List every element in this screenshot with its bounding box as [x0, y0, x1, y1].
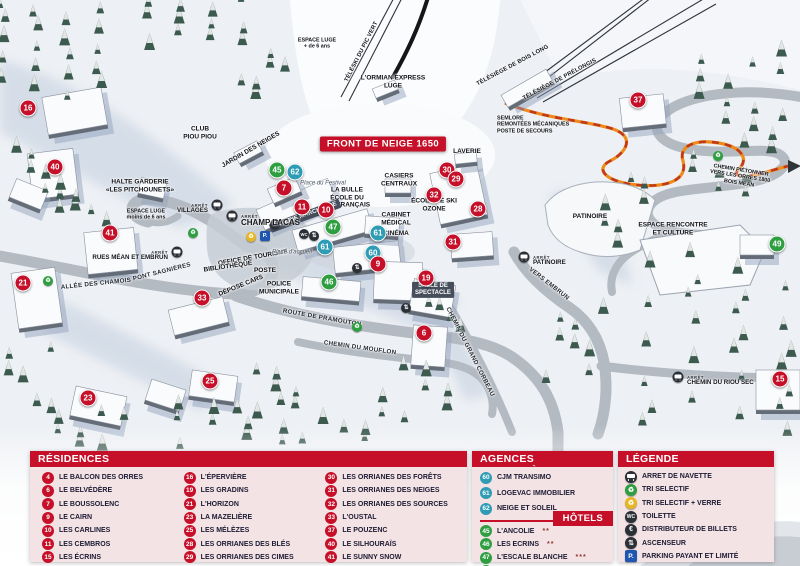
map-label-line: POLICE	[259, 280, 299, 288]
legend-item-label: L'OUSTAL	[342, 514, 376, 521]
parking-icon: P.	[625, 550, 637, 562]
bus-stop-label: ARRÊTRUES MÉAN ET EMBRUN	[92, 251, 168, 262]
legend-item-label: LA MAZELIÈRE	[201, 514, 252, 521]
marker-16-residence: 16	[20, 100, 37, 117]
map-number-badge: 25	[184, 525, 196, 537]
legend-item-agency: 60CJM TRANSIMO	[480, 470, 613, 486]
map-label-line: CENTRAUX	[381, 180, 417, 188]
map-label-line: MUNICIPALE	[259, 288, 299, 296]
marker-46-hotel: 46	[321, 274, 338, 291]
bus-glyph	[172, 247, 183, 258]
map-label-line: + de 6 ans	[298, 44, 336, 50]
tree	[238, 0, 245, 2]
marker-37-residence: 37	[630, 92, 647, 109]
arret-caption: ARRÊT	[92, 251, 168, 255]
marker-25-residence: 25	[202, 373, 219, 390]
map-label-line: LA BULLE	[324, 187, 370, 195]
legend-item-label: LES ÉCRINS	[59, 554, 101, 561]
marker-6-residence: 6	[416, 325, 433, 342]
legend-item-label: LE BELVÉDÈRE	[59, 487, 112, 494]
legend-item-residence: 11LES CEMBROS	[42, 537, 184, 550]
legend-item-label: DISTRIBUTEUR DE BILLETS	[642, 526, 737, 533]
arret-caption: ARRÊT	[687, 376, 754, 380]
marker-45-hotel: 45	[269, 162, 286, 179]
marker-21-residence: 21	[15, 275, 32, 292]
marker-9-residence: 9	[370, 256, 387, 273]
tree-snow-cap	[146, 0, 150, 2]
legend-item-residence: 21L'HORIZON	[184, 498, 326, 511]
legend-item-residence: 33L'OUSTAL	[325, 511, 467, 524]
map-label-cinema: CINÉMA	[383, 230, 409, 238]
legend-item-label: LE BOUSSOLENC	[59, 501, 119, 508]
map-label-espace-luge-plus: ESPACE LUGE+ de 6 ans	[298, 38, 336, 51]
recycle-green-icon: ♻	[713, 151, 723, 161]
marker-28-residence: 28	[470, 201, 487, 218]
legend-item-symbol: ⇅ASCENSEUR	[625, 536, 774, 549]
legend-item-label: L'ESCALE BLANCHE	[497, 554, 568, 561]
map-label-line: MÉDICAL	[381, 219, 411, 227]
toilet-icon: WC	[625, 511, 637, 523]
map-label-line: moins de 6 ans	[127, 215, 166, 221]
legende-panel: LÉGENDE ARRET DE NAVETTE♻TRI SELECTIF♻TR…	[618, 451, 774, 562]
legend-item-label: ASCENSEUR	[642, 540, 686, 547]
map-number-badge: 9	[42, 512, 54, 524]
map-number-badge: 4	[42, 472, 54, 484]
map-label-laverie: LAVERIE	[453, 148, 481, 156]
front-de-neige-banner: FRONT DE NEIGE 1650	[320, 137, 446, 152]
legend-item-label: LE BALCON DES ORRES	[59, 474, 143, 481]
agences-hotels-panel: AGENCES IMMOBILIÈRES HÔTELS 60CJM TRANSI…	[472, 451, 613, 562]
map-label-cabinet-medical: CABINETMÉDICAL	[381, 211, 411, 226]
map-number-badge: 62	[480, 503, 492, 515]
residences-header: RÉSIDENCES	[30, 451, 467, 467]
marker-15-residence: 15	[772, 371, 789, 388]
map-number-badge: 31	[325, 485, 337, 497]
legend-item-residence: 19LES GRADINS	[184, 484, 326, 497]
legend-item-label: L'HORIZON	[201, 501, 239, 508]
map-label-line: PATINOIRE	[573, 213, 607, 221]
legend-item-residence: 31LES ORRIANES DES NEIGES	[325, 484, 467, 497]
map-number-badge: 37	[325, 525, 337, 537]
legend-item-residence: 41LE SUNNY SNOW	[325, 551, 467, 564]
legend-item-hotel: 46LES ECRINS**	[480, 538, 613, 551]
legende-list: ARRET DE NAVETTE♻TRI SELECTIF♻TRI SELECT…	[618, 467, 774, 562]
map-number-badge: 23	[184, 512, 196, 524]
legend-item-label: PARKING PAYANT ET LIMITÉ	[642, 553, 738, 560]
legend-item-label: LES CEMBROS	[59, 541, 110, 548]
legend-item-label: LE SUNNY SNOW	[342, 554, 401, 561]
residences-column-2: 16L'ÉPERVIÈRE19LES GRADINS21L'HORIZON23L…	[184, 471, 326, 562]
legende-header: LÉGENDE	[618, 451, 774, 467]
map-number-badge: 61	[480, 487, 492, 499]
map-number-badge: 41	[325, 551, 337, 563]
recycle-green-icon: ♻	[352, 322, 362, 332]
marker-61-agency: 61	[370, 225, 387, 242]
map-label-ormian-express-luge: L'ORMIAN EXPRESSLUGE	[361, 74, 425, 89]
hotels-header: HÔTELS	[553, 511, 613, 526]
legend-item-symbol: ♻TRI SELECTIF + VERRE	[625, 497, 774, 510]
bus-stop-label: ARRÊTCHAMP LACAS	[241, 215, 300, 228]
residences-column-3: 30LES ORRIANES DES FORÊTS31LES ORRIANES …	[325, 471, 467, 562]
map-label-patinoire: PATINOIRE	[573, 213, 607, 221]
map-label-casiers-centraux: CASIERSCENTRAUX	[381, 172, 417, 187]
map-number-badge: 19	[184, 485, 196, 497]
map-number-badge: 32	[325, 498, 337, 510]
legend-item-symbol: €DISTRIBUTEUR DE BILLETS	[625, 523, 774, 536]
map-label-line: «LES PITCHOUNETS»	[106, 186, 174, 194]
map-label-semlore: SEMLOREREMONTÉES MÉCANIQUESPOSTE DE SECO…	[497, 115, 569, 134]
bus-icon	[212, 200, 223, 211]
legend-item-label: NEIGE ET SOLEIL	[497, 505, 557, 512]
map-label-line: POSTE DE SECOURS	[497, 128, 569, 134]
legend-item-label: TOILETTE	[642, 513, 676, 520]
map-label-espace-luge-moins: ESPACE LUGEmoins de 6 ans	[127, 209, 166, 222]
legend-item-label: LES ORRIANES DES FORÊTS	[342, 474, 441, 481]
legend-item-label: LES CARLINES	[59, 527, 110, 534]
map-number-badge: 47	[480, 552, 492, 564]
map-label-line: Place d'accueil	[272, 249, 312, 256]
map-number-badge: 6	[42, 485, 54, 497]
legend-item-residence: 6LE BELVÉDÈRE	[42, 484, 184, 497]
legend-item-residence: 37LE POUZENC	[325, 524, 467, 537]
map-number-badge: 29	[184, 551, 196, 563]
marker-31-residence: 31	[445, 234, 462, 251]
legend-item-symbol: WCTOILETTE	[625, 510, 774, 523]
bus-glyph	[625, 471, 637, 483]
legend-item-label: L'ÉPERVIÈRE	[201, 474, 247, 481]
map-label-line: CINÉMA	[383, 230, 409, 238]
legend-item-residence: 16L'ÉPERVIÈRE	[184, 471, 326, 484]
map-label-poste: POSTE	[254, 267, 276, 275]
residences-column-1: 4LE BALCON DES ORRES6LE BELVÉDÈRE7LE BOU…	[42, 471, 184, 562]
recycle-green-icon: ♻	[625, 484, 637, 496]
legend-item-residence: 28LES ORRIANES DES BLÉS	[184, 537, 326, 550]
legend-item-label: TRI SELECTIF	[642, 486, 689, 493]
map-label-line: OZONE	[411, 205, 457, 213]
legend-item-residence: 4LE BALCON DES ORRES	[42, 471, 184, 484]
map-number-badge: 60	[480, 472, 492, 484]
map-number-badge: 46	[480, 538, 492, 550]
map-label-line: ESPACE RENCONTRE	[638, 221, 707, 229]
legend-item-symbol: P.PARKING PAYANT ET LIMITÉ	[625, 550, 774, 563]
legend-item-label: LES GRADINS	[201, 487, 249, 494]
map-label-salle-de-spectacle: SALLE DESPECTACLE	[412, 282, 454, 298]
map-number-badge: 15	[42, 551, 54, 563]
marker-47-hotel: 47	[325, 219, 342, 236]
map-label-line: ET CULTURE	[638, 229, 707, 237]
elevator-icon: ⇅	[352, 263, 362, 273]
bus-glyph	[212, 200, 223, 211]
elevator-icon: ⇅	[309, 231, 319, 241]
bus-icon	[673, 372, 684, 383]
map-number-badge: 33	[325, 512, 337, 524]
map-number-badge: 7	[42, 498, 54, 510]
legend-item-label: LES MÉLÈZES	[201, 527, 250, 534]
map-label-line: CLUB	[183, 125, 217, 133]
marker-61-agency: 61	[317, 239, 334, 256]
map-number-badge: 21	[184, 498, 196, 510]
legend-item-residence: 29LES ORRIANES DES CIMES	[184, 551, 326, 564]
map-label-line: SPECTACLE	[415, 290, 451, 297]
map-number-badge: 45	[480, 525, 492, 537]
map-number-badge: 30	[325, 472, 337, 484]
map-label-line: POSTE	[254, 267, 276, 275]
map-number-badge: 11	[42, 538, 54, 550]
map-label-line: Place du Festival	[300, 180, 346, 187]
legend-item-label: CJM TRANSIMO	[497, 474, 551, 481]
marker-49-hotel: 49	[769, 236, 786, 253]
bus-glyph	[227, 211, 238, 222]
residences-list: 4LE BALCON DES ORRES6LE BELVÉDÈRE7LE BOU…	[30, 467, 467, 562]
elevator-icon: ⇅	[401, 303, 411, 313]
legend-item-label: LOGEVAC IMMOBILIER	[497, 490, 575, 497]
recycle-green-icon: ♻	[188, 228, 198, 238]
marker-62-agency: 62	[287, 164, 304, 181]
map-label-place-du-festival: Place du Festival	[300, 180, 346, 187]
euro-icon: €	[625, 524, 637, 536]
map-number-badge: 28	[184, 538, 196, 550]
map-label-place-accueil: Place d'accueil	[272, 249, 312, 256]
bus-glyph	[519, 252, 530, 263]
recycle-green-icon: ♻	[43, 276, 53, 286]
bus-icon	[172, 247, 183, 258]
bus-icon	[227, 211, 238, 222]
recycle-yellow-icon: ♻	[246, 232, 256, 242]
map-label-line: LUGE	[361, 82, 425, 90]
marker-23-residence: 23	[80, 390, 97, 407]
legend-item-label: LES ECRINS	[497, 541, 539, 548]
arret-caption: ARRÊT	[533, 256, 566, 260]
parking-icon: P.	[260, 231, 270, 241]
marker-10-residence: 10	[318, 202, 335, 219]
marker-33-residence: 33	[194, 290, 211, 307]
bus-icon	[519, 252, 530, 263]
bus-stop-label: ARRÊTVILLAGES	[177, 204, 208, 215]
residences-panel: RÉSIDENCES 4LE BALCON DES ORRES6LE BELVÉ…	[30, 451, 467, 562]
legend-item-label: LES ORRIANES DES SOURCES	[342, 501, 447, 508]
legend-item-residence: 30LES ORRIANES DES FORÊTS	[325, 471, 467, 484]
legend-item-residence: 7LE BOUSSOLENC	[42, 498, 184, 511]
marker-41-residence: 41	[102, 225, 119, 242]
legend-item-label: LE POUZENC	[342, 527, 387, 534]
bus-stop-label: ARRÊTCHEMIN DU RIOU SEC	[687, 376, 754, 387]
hotel-stars: ***	[576, 554, 587, 561]
legend-item-agency: 61LOGEVAC IMMOBILIER	[480, 486, 613, 502]
bus-icon	[625, 471, 637, 483]
map-label-line: PIOU PIOU	[183, 133, 217, 141]
legend-item-residence: 40LE SILHOURAÏS	[325, 537, 467, 550]
bus-glyph	[673, 372, 684, 383]
map-label-line: REMONTÉES MÉCANIQUES	[497, 122, 569, 128]
toilet-icon: WC	[299, 229, 309, 239]
marker-29-residence: 29	[448, 171, 465, 188]
map-label-line: CABINET	[381, 211, 411, 219]
hotel-stars: **	[547, 541, 554, 548]
map-number-badge: 16	[184, 472, 196, 484]
arret-caption: ARRÊT	[177, 204, 208, 208]
legend-item-residence: 15LES ÉCRINS	[42, 551, 184, 564]
map-label-club-piou-piou: CLUBPIOU PIOU	[183, 125, 217, 140]
bus-stop-label: ARRÊTPATINOIRE	[533, 256, 566, 267]
map-label-line: L'ORMIAN EXPRESS	[361, 74, 425, 82]
legend-item-label: LE CAIRN	[59, 514, 92, 521]
map-number-badge: 10	[42, 525, 54, 537]
marker-32-residence: 32	[426, 187, 443, 204]
map-label-line: HALTE GARDERIE	[106, 178, 174, 186]
agences-header: AGENCES IMMOBILIÈRES	[472, 451, 613, 467]
legend-item-symbol: ♻TRI SELECTIF	[625, 483, 774, 496]
marker-7-residence: 7	[276, 180, 293, 197]
legend-item-hotel: 45L'ANCOLIE**	[480, 525, 613, 538]
legend-item-label: LES ORRIANES DES CIMES	[201, 554, 294, 561]
agences-list: HÔTELS 60CJM TRANSIMO61LOGEVAC IMMOBILIE…	[472, 467, 613, 562]
legend-item-residence: 10LES CARLINES	[42, 524, 184, 537]
legend-item-label: LES ORRIANES DES BLÉS	[201, 541, 290, 548]
legend-item-residence: 23LA MAZELIÈRE	[184, 511, 326, 524]
legend-item-label: L'ANCOLIE	[497, 528, 534, 535]
marker-40-residence: 40	[47, 159, 64, 176]
map-label-halte-garderie: HALTE GARDERIE«LES PITCHOUNETS»	[106, 178, 174, 193]
legend-item-residence: 9LE CAIRN	[42, 511, 184, 524]
map-number-badge: 40	[325, 538, 337, 550]
recycle-yellow-icon: ♻	[625, 497, 637, 509]
arret-caption: ARRÊT	[241, 215, 300, 219]
ski-resort-map: FRONT DE NEIGE 1650 16404121332325456271…	[0, 0, 800, 566]
legend-item-residence: 25LES MÉLÈZES	[184, 524, 326, 537]
marker-19-residence: 19	[418, 270, 435, 287]
legend-item-label: LES ORRIANES DES NEIGES	[342, 487, 439, 494]
legend-item-label: TRI SELECTIF + VERRE	[642, 500, 721, 507]
legend-item-label: LE SILHOURAÏS	[342, 541, 396, 548]
map-label-police-municipale: POLICEMUNICIPALE	[259, 280, 299, 295]
legend-item-residence: 32LES ORRIANES DES SOURCES	[325, 498, 467, 511]
legend-item-label: ARRET DE NAVETTE	[642, 473, 712, 480]
legend-item-hotel: 47L'ESCALE BLANCHE***	[480, 551, 613, 564]
marker-11-residence: 11	[294, 199, 311, 216]
legend-item-symbol: ARRET DE NAVETTE	[625, 470, 774, 483]
map-label-line: LAVERIE	[453, 148, 481, 156]
map-label-line: CASIERS	[381, 172, 417, 180]
hotel-stars: **	[542, 528, 549, 535]
map-label-espace-rencontre: ESPACE RENCONTREET CULTURE	[638, 221, 707, 236]
elevator-icon: ⇅	[625, 537, 637, 549]
